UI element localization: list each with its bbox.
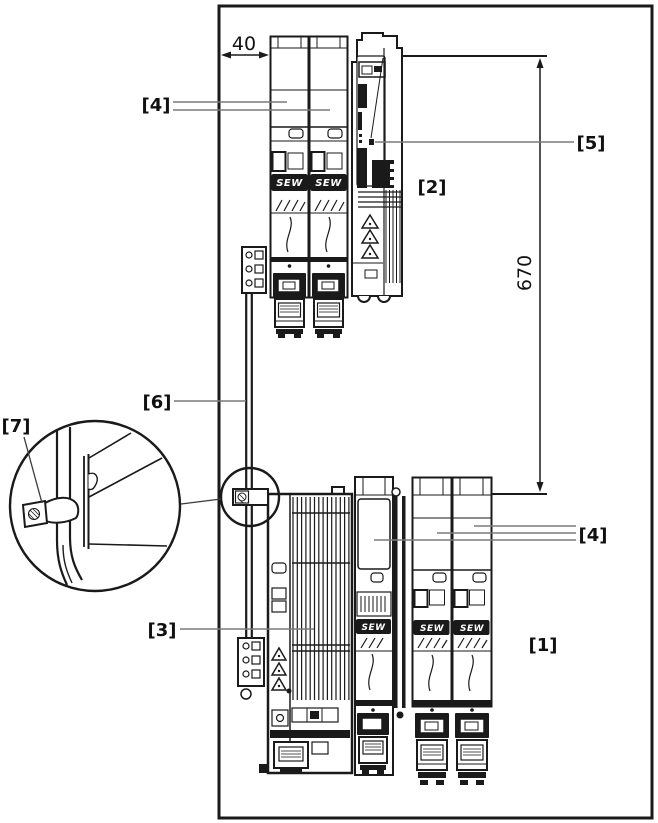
sew-logo: SEW <box>276 178 303 189</box>
callout-7: [7] <box>2 416 31 437</box>
sew-logo: SEW <box>361 623 386 633</box>
callout-4-top: [4] <box>142 95 171 116</box>
dimension-670-value: 670 <box>514 255 536 291</box>
option-slot <box>369 139 374 145</box>
callout-3: [3] <box>148 620 177 641</box>
sew-logo: SEW <box>460 624 485 634</box>
callout-1: [1] <box>529 635 558 656</box>
detail-reference-line <box>181 499 221 504</box>
finned-module <box>259 487 352 773</box>
sew-logo: SEW <box>315 178 342 189</box>
terminal-block-top <box>242 247 266 293</box>
callout-4-bottom: [4] <box>579 525 608 546</box>
diagram-canvas: 40 670 [4] [5] [2] [6] [7] [4] [3] [1] S… <box>0 0 658 823</box>
callout-5: [5] <box>577 133 606 154</box>
controller-module <box>352 33 402 302</box>
technical-diagram: 40 670 [4] [5] [2] [6] [7] [4] [3] [1] S… <box>0 0 658 823</box>
callout-2: [2] <box>418 177 447 198</box>
dimension-40-value: 40 <box>232 33 256 55</box>
sew-logo: SEW <box>420 624 445 634</box>
callout-6: [6] <box>143 392 172 413</box>
detail-view-circle <box>10 421 180 591</box>
